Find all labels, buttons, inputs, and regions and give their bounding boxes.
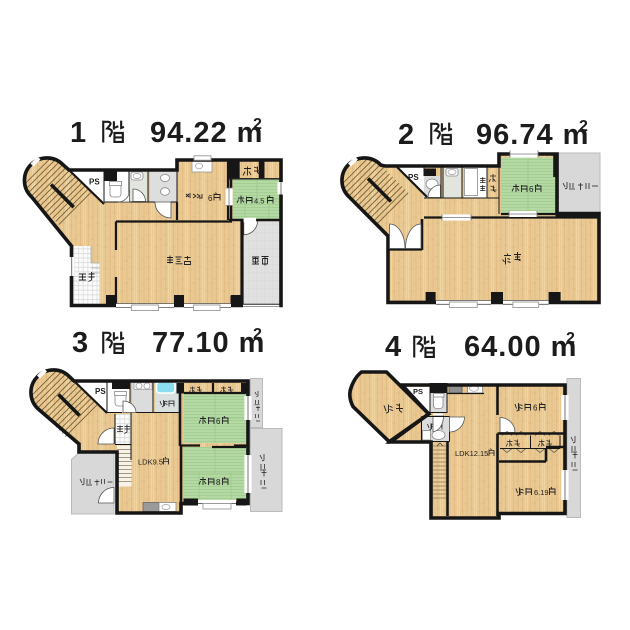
svg-text:PS: PS — [95, 387, 106, 396]
svg-text:6: 6 — [216, 417, 221, 426]
svg-text:6.19: 6.19 — [534, 488, 549, 497]
svg-text:PS: PS — [89, 178, 100, 187]
svg-text:4: 4 — [385, 331, 402, 363]
svg-text:6: 6 — [529, 185, 534, 194]
svg-text:94.22 m: 94.22 m — [150, 117, 263, 149]
svg-text:6: 6 — [533, 404, 538, 413]
svg-text:PS: PS — [413, 387, 423, 396]
svg-text:6: 6 — [208, 194, 213, 203]
svg-text:64.00 m: 64.00 m — [464, 331, 577, 363]
svg-text:2: 2 — [253, 326, 262, 343]
svg-text:2: 2 — [398, 119, 415, 151]
svg-text:3: 3 — [72, 327, 89, 359]
svg-text:2: 2 — [566, 330, 575, 347]
svg-text:96.74 m: 96.74 m — [476, 119, 589, 151]
svg-text:LDK12.15: LDK12.15 — [455, 449, 488, 458]
svg-text:77.10 m: 77.10 m — [152, 327, 265, 359]
svg-text:8: 8 — [216, 478, 221, 487]
svg-text:2: 2 — [579, 118, 588, 135]
svg-text:LDK9.5: LDK9.5 — [138, 458, 163, 467]
svg-text:4.5: 4.5 — [254, 197, 264, 206]
svg-text:1: 1 — [70, 117, 87, 149]
svg-text:2: 2 — [253, 116, 262, 133]
